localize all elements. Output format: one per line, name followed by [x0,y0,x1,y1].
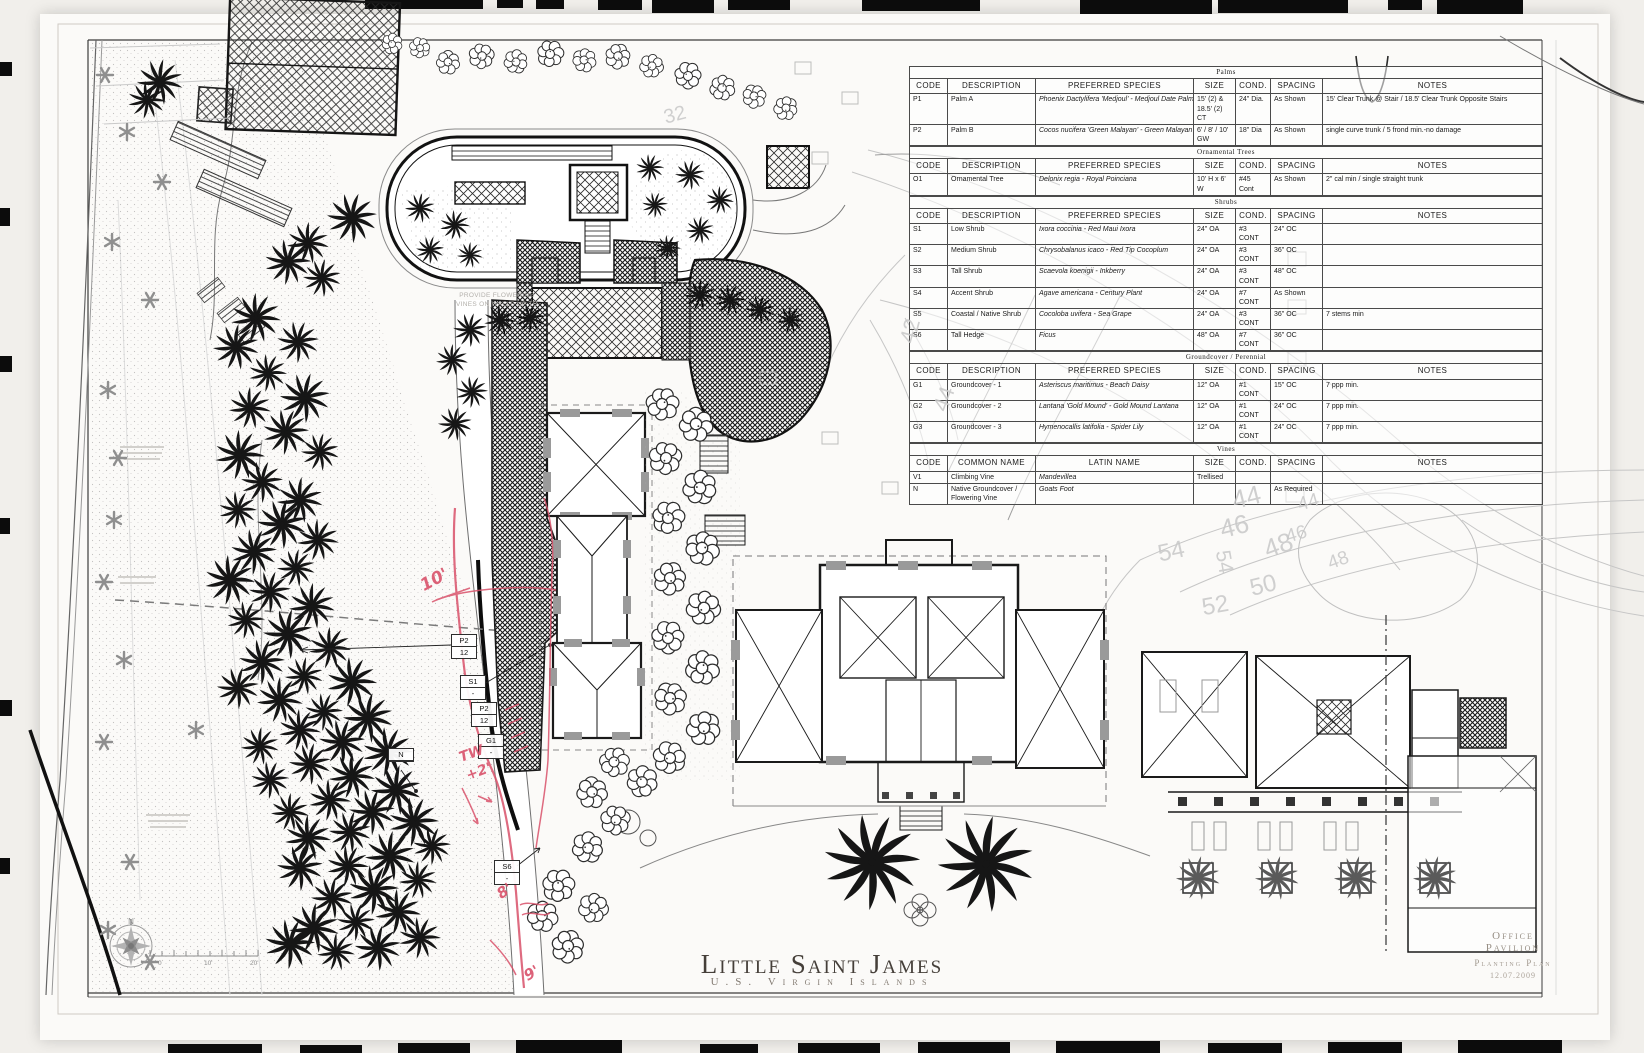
schedule-column-header: COND. [1236,364,1271,379]
callout-code: P2 [472,703,496,715]
schedule-row: G2Groundcover - 2Lantana 'Gold Mound' - … [910,400,1543,421]
schedule-cell: As Shown [1271,124,1323,145]
schedule-cell: 15' Clear Trunk @ Stair / 18.5' Clear Tr… [1323,94,1543,124]
schedule-cell: Groundcover - 1 [948,379,1036,400]
schedule-column-header: NOTES [1323,79,1543,94]
schedule-cell: 12" OA [1194,400,1236,421]
schedule-cell: O1 [910,174,948,195]
schedule-cell: P1 [910,94,948,124]
schedule-cell: Goats Foot [1036,483,1194,504]
schedule-cell [1323,287,1543,308]
title-block: Office Pavilion Planting Plan 12.07.2009 [1452,930,1574,980]
schedule-cell: Scaevola koenigii - Inkberry [1036,266,1194,287]
schedule-cell [1323,471,1543,483]
schedule-cell: Lantana 'Gold Mound' - Gold Mound Lantan… [1036,400,1194,421]
schedule-cell: 24" OA [1194,266,1236,287]
tree-canopy-symbol [769,92,802,125]
schedule-cell: 12" OA [1194,379,1236,400]
schedule-cell: Tall Shrub [948,266,1036,287]
schedule-cell: Ficus [1036,330,1194,351]
scale-label: 10' [204,960,212,967]
schedule-cell: Phoenix Dactylifera 'Medjoul' - Medjoul … [1036,94,1194,124]
tree-canopy-symbol [638,52,666,80]
callout-qty: 12 [452,647,476,658]
schedule-column-header: CODE [910,159,948,174]
schedule-column-header: NOTES [1323,364,1543,379]
schedule-row: S2Medium ShrubChrysobalanus icaco - Red … [910,245,1543,266]
schedule-cell: #7 CONT [1236,330,1271,351]
schedule-cell: Ixora coccinia - Red Maui Ixora [1036,224,1194,245]
schedule-cell: N [910,483,948,504]
schedule-row: G1Groundcover - 1Asteriscus maritimus - … [910,379,1543,400]
scale-label: 20' [250,960,258,967]
contour-elevation-label: 52 [1200,590,1231,622]
schedule-cell [1271,471,1323,483]
schedule-cell: Hymenocallis latifolia - Spider Lily [1036,422,1194,443]
schedule-cell: 24" OA [1194,287,1236,308]
schedule-section-title: Ornamental Trees [910,146,1543,158]
plant-callout-s1: S1- [460,675,486,700]
schedule-row: S1Low ShrubIxora coccinia - Red Maui Ixo… [910,224,1543,245]
plan-subtitle: U.S. Virgin Islands [642,976,1002,988]
schedule-column-header: SIZE [1194,79,1236,94]
schedule-cell: As Shown [1271,94,1323,124]
schedule-column-header: PREFERRED SPECIES [1036,159,1194,174]
schedule-column-header: COMMON NAME [948,456,1036,471]
schedule-cell: 7 ppp min. [1323,379,1543,400]
schedule-cell: 24" OA [1194,224,1236,245]
callout-code: S1 [461,676,485,688]
schedule-cell: single curve trunk / 5 frond min.-no dam… [1323,124,1543,145]
tree-canopy-symbol [567,827,609,869]
schedule-cell: Palm B [948,124,1036,145]
schedule-row: V1Climbing VineMandevilleaTrellised [910,471,1543,483]
schedule-cell: Cocoloba uvifera - Sea Grape [1036,308,1194,329]
callout-code: S6 [495,861,519,873]
schedule-cell: 24" OC [1271,400,1323,421]
schedule-column-header: COND. [1236,159,1271,174]
schedule-cell: 7 ppp min. [1323,400,1543,421]
schedule-cell: Groundcover - 3 [948,422,1036,443]
schedule-cell: 18" Dia [1236,124,1271,145]
schedule-cell: Medium Shrub [948,245,1036,266]
tree-canopy-symbol [547,925,588,967]
plan-sheet: PalmsCODEDESCRIPTIONPREFERRED SPECIESSIZ… [0,0,1644,1053]
schedule-column-header: DESCRIPTION [948,364,1036,379]
schedule-cell [1323,330,1543,351]
schedule-cell: As Shown [1271,287,1323,308]
schedule-cell: Accent Shrub [948,287,1036,308]
schedule-cell: S2 [910,245,948,266]
schedule-cell: 2" cal min / single straight trunk [1323,174,1543,195]
schedule-cell: 36" OC [1271,330,1323,351]
schedule-column-header: SIZE [1194,208,1236,223]
schedule-row: NNative Groundcover / Flowering VineGoat… [910,483,1543,504]
schedule-cell: 6' / 8' / 10' GW [1194,124,1236,145]
schedule-column-header: SIZE [1194,456,1236,471]
schedule-column-header: PREFERRED SPECIES [1036,79,1194,94]
plan-note-line: VINES ON WALLS UP TO [452,300,542,309]
tree-canopy-symbol [577,892,610,925]
schedule-cell: Mandevillea [1036,471,1194,483]
schedule-column-header: CODE [910,79,948,94]
plan-note-line: PROVIDE FLOWERING [452,291,542,300]
schedule-row: S3Tall ShrubScaevola koenigii - Inkberry… [910,266,1543,287]
tree-canopy-symbol [500,46,531,77]
schedule-column-header: DESCRIPTION [948,79,1036,94]
schedule-cell: Chrysobalanus icaco - Red Tip Cocoplum [1036,245,1194,266]
schedule-cell: Tall Hedge [948,330,1036,351]
schedule-cell [1323,266,1543,287]
schedule-column-header: NOTES [1323,208,1543,223]
contour-elevation-label: 54 [1210,548,1238,575]
schedule-column-header: COND. [1236,79,1271,94]
schedule-column-header: DESCRIPTION [948,208,1036,223]
tree-canopy-symbol [568,44,601,77]
plant-callout-p2: P212 [471,702,497,727]
north-label: N [121,917,141,926]
schedule-row: P2Palm BCocos nucifera 'Green Malayan' -… [910,124,1543,145]
schedule-cell [1323,483,1543,504]
schedule-cell: 36" OC [1271,245,1323,266]
schedule-section-title: Vines [910,444,1543,456]
schedule-cell: #3 CONT [1236,266,1271,287]
callout-qty: 12 [472,715,496,726]
schedule-column-header: CODE [910,364,948,379]
schedule-cell: #1 CONT [1236,400,1271,421]
schedule-column-header: SPACING [1271,159,1323,174]
tree-canopy-symbol [576,776,609,809]
schedule-row: S5Coastal / Native ShrubCocoloba uvifera… [910,308,1543,329]
contour-elevation-label: 54 [1155,536,1187,569]
schedule-cell: Agave americana - Century Plant [1036,287,1194,308]
callout-code: N [389,749,413,761]
tree-canopy-symbol [406,34,435,63]
schedule-section-title: Palms [910,67,1543,79]
schedule-cell: 48" OC [1271,266,1323,287]
schedule-column-header: SPACING [1271,456,1323,471]
plant-schedule: PalmsCODEDESCRIPTIONPREFERRED SPECIESSIZ… [909,66,1542,505]
schedule-cell: 48" OA [1194,330,1236,351]
schedule-cell: Delonix regia - Royal Poinciana [1036,174,1194,195]
schedule-cell: 24" OA [1194,245,1236,266]
schedule-table: Ornamental TreesCODEDESCRIPTIONPREFERRED… [909,146,1543,196]
tree-canopy-symbol [707,73,737,103]
schedule-column-header: COND. [1236,456,1271,471]
schedule-cell: Coastal / Native Shrub [948,308,1036,329]
schedule-table: VinesCODECOMMON NAMELATIN NAMESIZECOND.S… [909,443,1543,505]
schedule-cell: Climbing Vine [948,471,1036,483]
schedule-column-header: DESCRIPTION [948,159,1036,174]
schedule-cell: Palm A [948,94,1036,124]
schedule-column-header: SPACING [1271,208,1323,223]
schedule-cell: 36" OC [1271,308,1323,329]
schedule-cell: 24" OA [1194,308,1236,329]
schedule-cell: 15' (2) & 18.5' (2) CT [1194,94,1236,124]
schedule-row: P1Palm APhoenix Dactylifera 'Medjoul' - … [910,94,1543,124]
schedule-cell: 12" OA [1194,422,1236,443]
schedule-cell: #3 CONT [1236,245,1271,266]
right-buildings [1142,615,1536,952]
schedule-column-header: SPACING [1271,79,1323,94]
callout-code: G1 [479,735,503,747]
schedule-cell: 24" OC [1271,422,1323,443]
tree-canopy-symbol [597,802,634,838]
schedule-cell: 7 ppp min. [1323,422,1543,443]
schedule-row: S4Accent ShrubAgave americana - Century … [910,287,1543,308]
schedule-column-header: PREFERRED SPECIES [1036,208,1194,223]
schedule-cell: #45 Cont [1236,174,1271,195]
plan-note: PROVIDE FLOWERING VINES ON WALLS UP TO [452,291,542,309]
schedule-section-title: Groundcover / Perennial [910,352,1543,364]
title-block-building-line1: Office [1452,930,1574,942]
schedule-column-header: SIZE [1194,364,1236,379]
callout-qty: - [461,688,485,699]
tree-canopy-symbol [436,50,459,74]
schedule-cell: Ornamental Tree [948,174,1036,195]
schedule-cell: #7 CONT [1236,287,1271,308]
schedule-cell: 7 stems min [1323,308,1543,329]
schedule-row: S6Tall HedgeFicus48" OA#7 CONT36" OC [910,330,1543,351]
schedule-cell: 24" OC [1271,224,1323,245]
schedule-column-header: PREFERRED SPECIES [1036,364,1194,379]
schedule-cell: 24" Dia. [1236,94,1271,124]
schedule-cell: V1 [910,471,948,483]
callout-code: P2 [452,635,476,647]
schedule-cell: #3 CONT [1236,224,1271,245]
scale-label: 0 [158,960,162,967]
schedule-section-title: Shrubs [910,196,1543,208]
schedule-cell: As Shown [1271,174,1323,195]
schedule-column-header: CODE [910,456,948,471]
schedule-cell: 10' H x 6' W [1194,174,1236,195]
schedule-column-header: COND. [1236,208,1271,223]
title-block-sheet-name: Planting Plan [1452,958,1574,968]
schedule-row: O1Ornamental TreeDelonix regia - Royal P… [910,174,1543,195]
schedule-cell: Cocos nucifera 'Green Malayan' - Green M… [1036,124,1194,145]
schedule-table: ShrubsCODEDESCRIPTIONPREFERRED SPECIESSI… [909,196,1543,352]
title-block-building-line2: Pavilion [1452,942,1574,954]
schedule-cell: #3 CONT [1236,308,1271,329]
schedule-cell: Groundcover - 2 [948,400,1036,421]
schedule-cell: #1 CONT [1236,422,1271,443]
schedule-column-header: SIZE [1194,159,1236,174]
schedule-cell: S3 [910,266,948,287]
schedule-cell: #1 CONT [1236,379,1271,400]
schedule-cell: 15" OC [1271,379,1323,400]
tree-canopy-symbol [675,62,702,89]
tree-canopy-symbol [738,80,769,112]
tree-canopy-symbol [532,35,569,72]
schedule-column-header: NOTES [1323,456,1543,471]
schedule-table: PalmsCODEDESCRIPTIONPREFERRED SPECIESSIZ… [909,66,1543,146]
plant-callout-n: N [388,748,414,762]
schedule-cell: G3 [910,422,948,443]
title-block-date: 12.07.2009 [1452,971,1574,980]
schedule-column-header: LATIN NAME [1036,456,1194,471]
schedule-table: Groundcover / PerennialCODEDESCRIPTIONPR… [909,351,1543,443]
tree-canopy-symbol [467,41,497,71]
schedule-row: G3Groundcover - 3Hymenocallis latifolia … [910,422,1543,443]
schedule-column-header: NOTES [1323,159,1543,174]
schedule-cell: Native Groundcover / Flowering Vine [948,483,1036,504]
schedule-column-header: CODE [910,208,948,223]
schedule-cell [1323,224,1543,245]
schedule-cell: Trellised [1194,471,1236,483]
schedule-column-header: SPACING [1271,364,1323,379]
schedule-cell: Low Shrub [948,224,1036,245]
schedule-cell: P2 [910,124,948,145]
schedule-cell [1323,245,1543,266]
schedule-cell: S4 [910,287,948,308]
plant-callout-p2: P212 [451,634,477,659]
tree-canopy-symbol [601,40,634,73]
schedule-cell: S1 [910,224,948,245]
schedule-cell: Asteriscus maritimus - Beach Daisy [1036,379,1194,400]
